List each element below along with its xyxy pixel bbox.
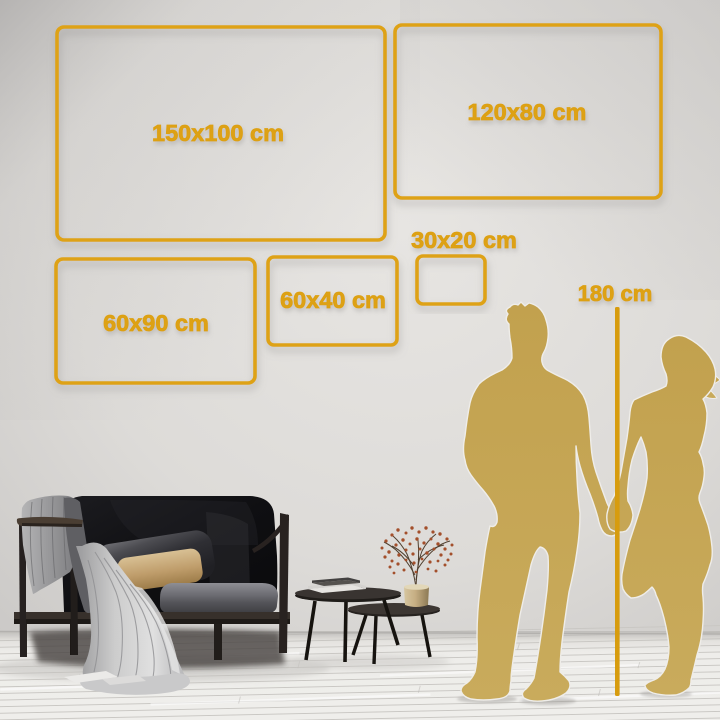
svg-text:60x40 cm: 60x40 cm [280,287,386,313]
svg-text:180 cm: 180 cm [578,281,653,306]
svg-text:150x100 cm: 150x100 cm [152,120,284,146]
svg-text:120x80 cm: 120x80 cm [468,99,587,125]
svg-text:60x90 cm: 60x90 cm [103,310,209,336]
svg-text:30x20 cm: 30x20 cm [411,227,517,253]
